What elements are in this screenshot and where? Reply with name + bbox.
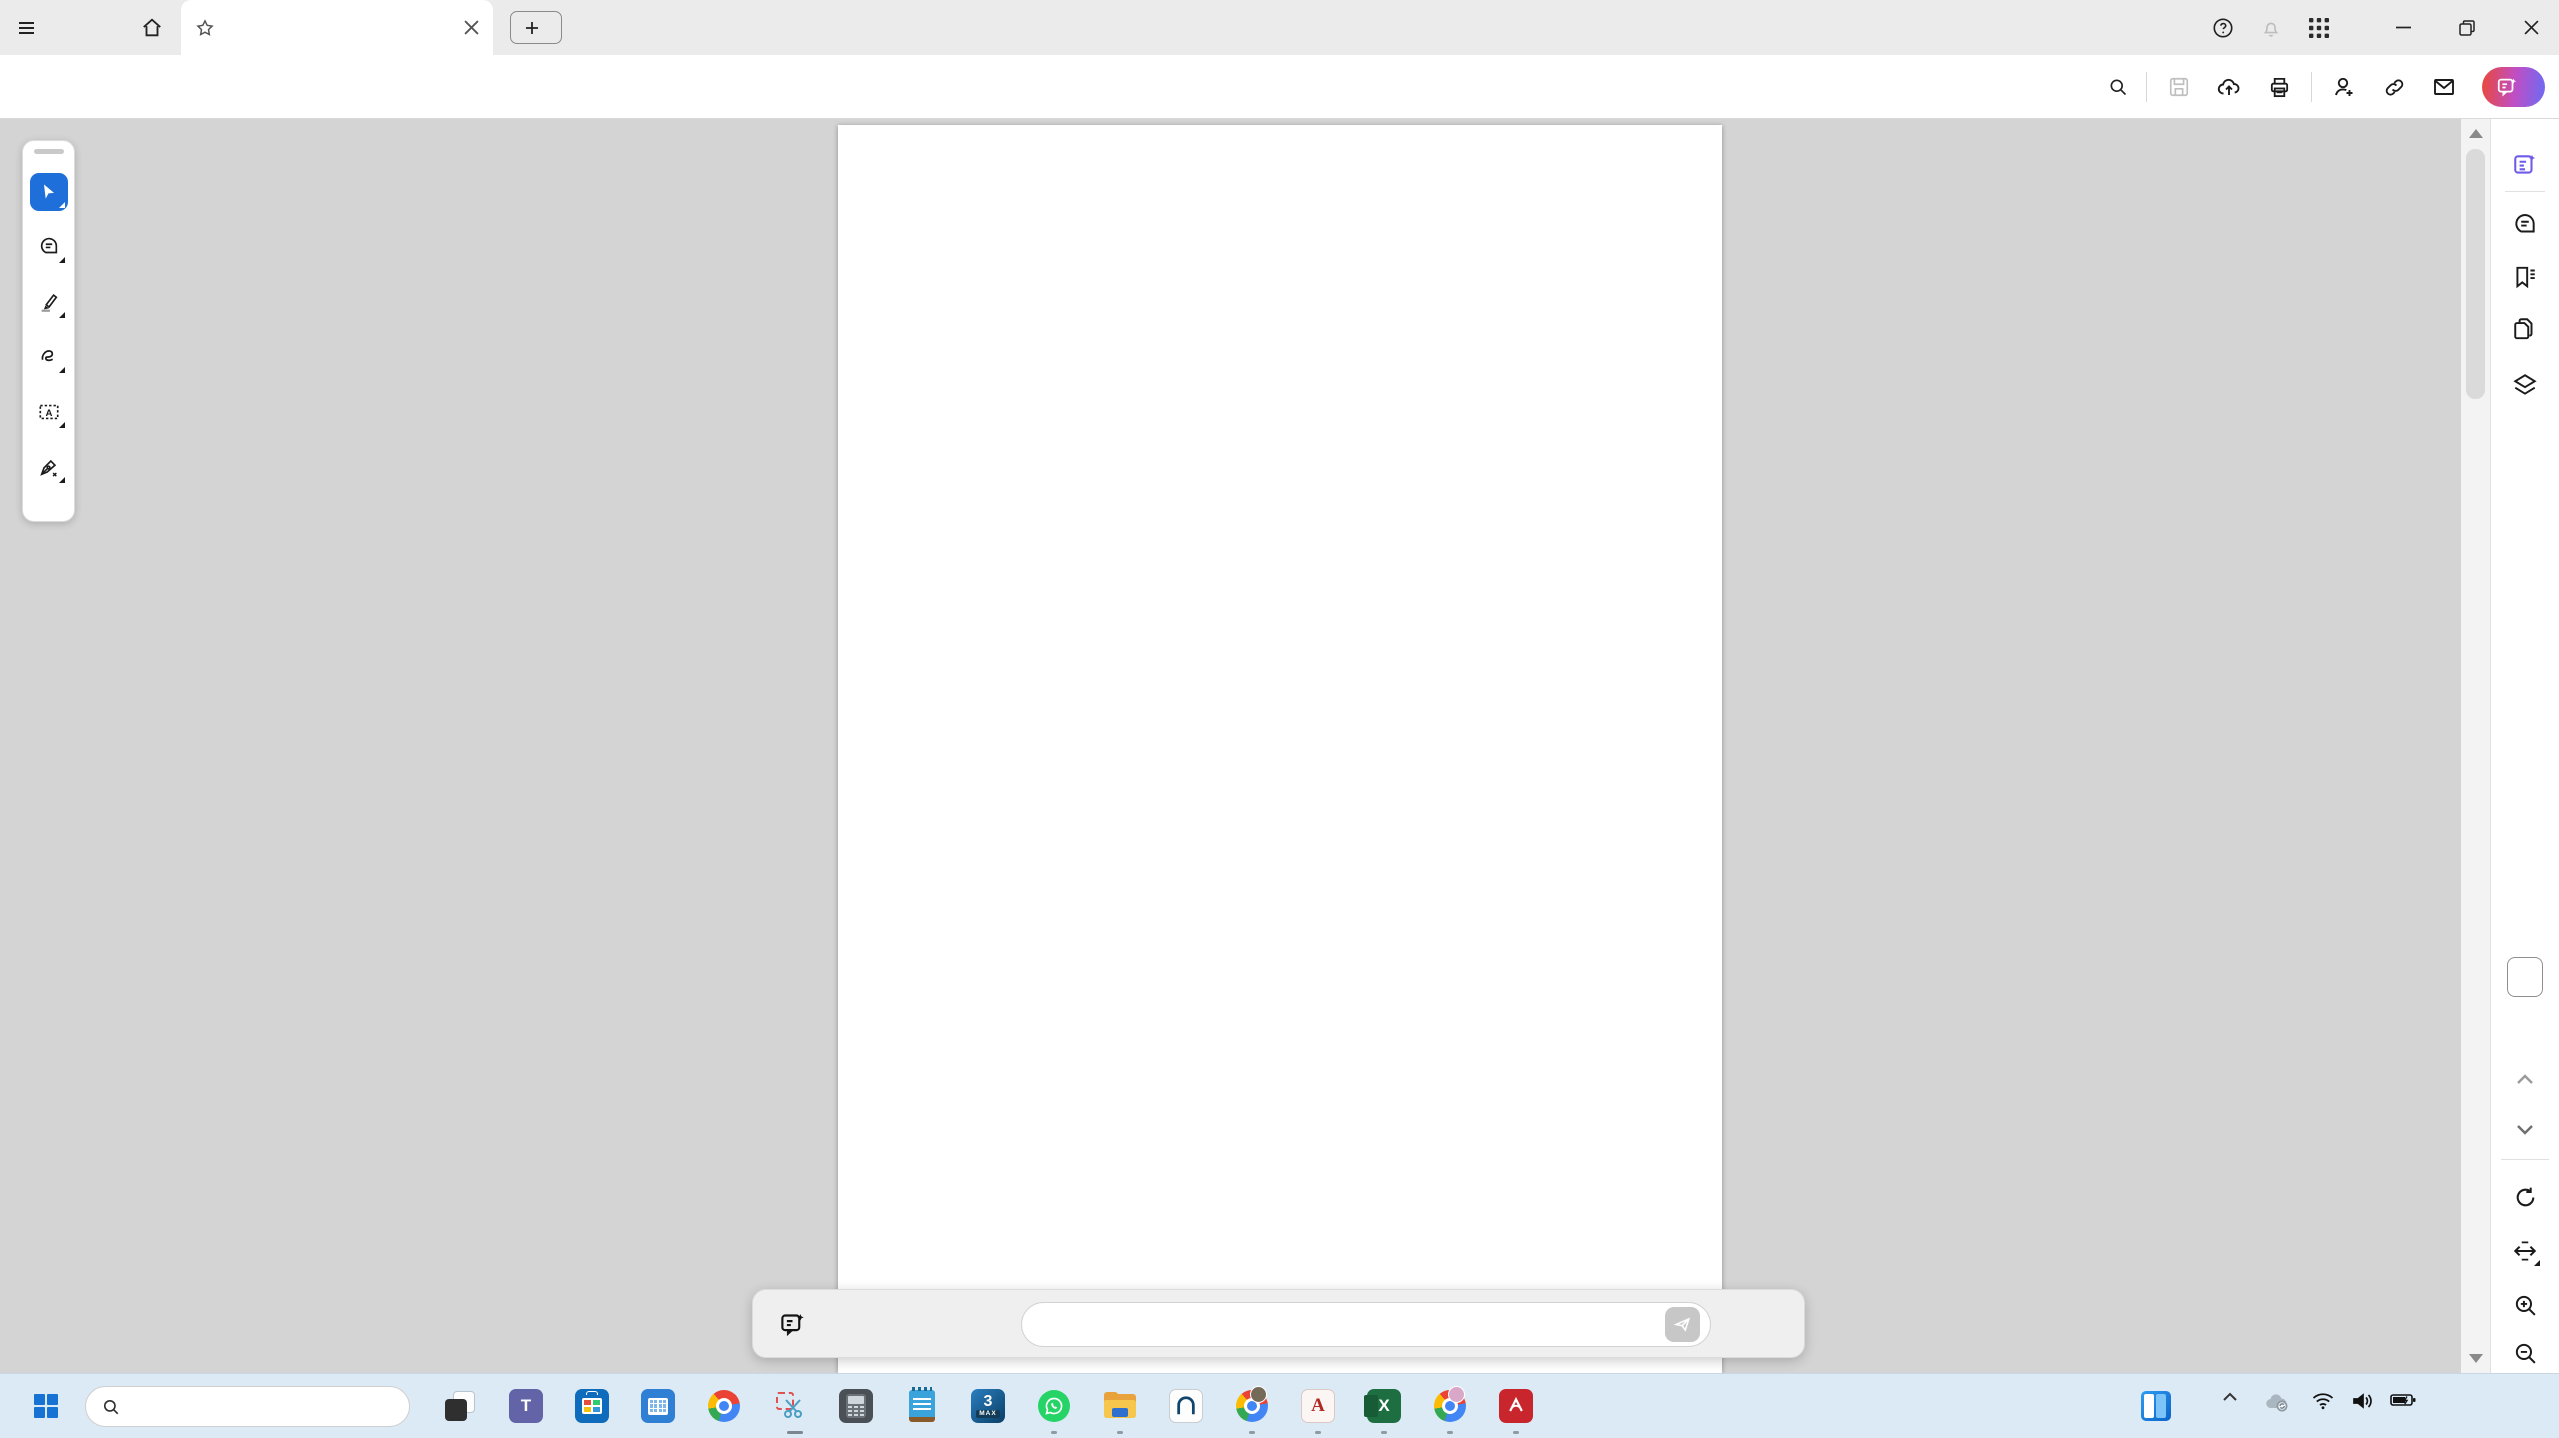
- onedrive-icon[interactable]: [2264, 1392, 2290, 1412]
- quick-tools-palette: A: [22, 140, 75, 522]
- 3dsmax-icon[interactable]: 3MAX: [968, 1386, 1008, 1426]
- volume-icon[interactable]: [2352, 1392, 2374, 1410]
- notepad-icon[interactable]: [902, 1386, 942, 1426]
- svg-text:A: A: [45, 408, 52, 419]
- battery-icon[interactable]: [2390, 1392, 2416, 1408]
- link-icon[interactable]: [2376, 69, 2412, 105]
- task-view-icon[interactable]: [440, 1386, 480, 1426]
- pages-panel-icon[interactable]: [2505, 309, 2545, 349]
- text-select-icon: A: [38, 401, 60, 423]
- page-number-input[interactable]: [2507, 957, 2543, 997]
- profile-avatar: [1250, 1386, 1267, 1403]
- close-window-button[interactable]: [2503, 0, 2559, 55]
- restore-button[interactable]: [2439, 0, 2495, 55]
- save-icon: [2161, 69, 2197, 105]
- snipping-tool-icon[interactable]: [770, 1386, 810, 1426]
- ai-chat-icon: [779, 1311, 806, 1338]
- taskbar-search[interactable]: [85, 1386, 410, 1427]
- previous-page-chevron-icon[interactable]: [2505, 1059, 2545, 1099]
- email-icon[interactable]: [2426, 69, 2462, 105]
- start-button[interactable]: [26, 1386, 66, 1426]
- cloud-upload-icon[interactable]: [2211, 69, 2247, 105]
- cursor-arrow-icon: [39, 182, 59, 202]
- next-page-chevron-icon[interactable]: [2505, 1109, 2545, 1149]
- pen-nib-icon: [38, 456, 60, 478]
- home-button[interactable]: [130, 0, 174, 55]
- home-icon: [141, 17, 163, 39]
- whatsapp-icon[interactable]: [1034, 1386, 1074, 1426]
- menu-button[interactable]: [0, 0, 63, 55]
- fill-sign-tool[interactable]: [30, 448, 68, 486]
- teams-icon[interactable]: T: [506, 1386, 546, 1426]
- request-signatures-icon[interactable]: [2326, 69, 2362, 105]
- tray-chevron-icon[interactable]: [2222, 1392, 2238, 1402]
- wifi-icon[interactable]: [2312, 1392, 2334, 1410]
- help-icon[interactable]: [2203, 0, 2243, 55]
- close-tab-icon[interactable]: [464, 20, 479, 35]
- notifications-bell-icon[interactable]: [2251, 0, 2291, 55]
- title-bar: [0, 0, 2559, 55]
- apps-grid-icon[interactable]: [2299, 0, 2339, 55]
- document-tab[interactable]: [181, 0, 493, 55]
- ai-question-input[interactable]: [1021, 1302, 1711, 1347]
- highlighter-icon: [38, 291, 60, 313]
- document-canvas[interactable]: [0, 119, 2490, 1373]
- hamburger-icon: [18, 21, 35, 35]
- file-explorer-icon[interactable]: [1100, 1386, 1140, 1426]
- calendar-icon[interactable]: [638, 1386, 678, 1426]
- profile-avatar: [1448, 1386, 1465, 1403]
- star-icon[interactable]: [195, 18, 215, 38]
- excel-icon[interactable]: X: [1364, 1386, 1404, 1426]
- chrome-icon[interactable]: [704, 1386, 744, 1426]
- right-panel-rail: [2490, 119, 2559, 1373]
- app-toolbar: [0, 55, 2559, 119]
- comment-bubble-icon: [38, 236, 60, 258]
- create-tab-button[interactable]: [510, 11, 562, 44]
- document-scrollbar[interactable]: [2461, 119, 2490, 1373]
- search-icon: [2108, 77, 2128, 97]
- select-tool[interactable]: [30, 173, 68, 211]
- zoom-out-icon[interactable]: [2505, 1333, 2545, 1373]
- windows-taskbar: T: [0, 1373, 2559, 1438]
- layers-panel-icon[interactable]: [2505, 365, 2545, 405]
- palette-drag-handle[interactable]: [34, 149, 64, 154]
- print-icon[interactable]: [2261, 69, 2297, 105]
- fit-width-icon[interactable]: [2505, 1231, 2545, 1271]
- facade-drawing: [838, 125, 1722, 1373]
- draw-tool[interactable]: [30, 338, 68, 376]
- chrome-profile2-icon[interactable]: [1430, 1386, 1470, 1426]
- taskbar-search-input[interactable]: [132, 1398, 372, 1415]
- rotate-page-icon[interactable]: [2505, 1177, 2545, 1217]
- chrome-profile1-icon[interactable]: [1232, 1386, 1272, 1426]
- scroll-up-arrow[interactable]: [2469, 129, 2483, 138]
- archicad-icon[interactable]: [1166, 1386, 1206, 1426]
- send-button[interactable]: [1665, 1307, 1700, 1342]
- find-text-button[interactable]: [2098, 77, 2128, 97]
- minimize-button[interactable]: [2375, 0, 2431, 55]
- autocad-icon[interactable]: A: [1298, 1386, 1338, 1426]
- ai-assistant-icon: [2496, 76, 2518, 98]
- acrobat-icon[interactable]: [1496, 1386, 1536, 1426]
- pdf-page[interactable]: [838, 125, 1722, 1373]
- comments-panel-icon[interactable]: [2505, 205, 2545, 245]
- microsoft-store-icon[interactable]: [572, 1386, 612, 1426]
- draw-squiggle-icon: [38, 346, 60, 368]
- ai-assistant-panel-icon[interactable]: [2505, 145, 2545, 185]
- zoom-in-icon[interactable]: [2505, 1285, 2545, 1325]
- calculator-icon[interactable]: [836, 1386, 876, 1426]
- scroll-down-arrow[interactable]: [2469, 1354, 2483, 1363]
- highlight-tool[interactable]: [30, 283, 68, 321]
- ask-ai-bar: [752, 1289, 1805, 1358]
- tray-app-icon[interactable]: [2136, 1386, 2176, 1426]
- scrollbar-thumb[interactable]: [2466, 149, 2485, 399]
- bookmarks-panel-icon[interactable]: [2505, 257, 2545, 297]
- ai-assistant-button[interactable]: [2482, 67, 2545, 107]
- select-text-tool[interactable]: A: [30, 393, 68, 431]
- comment-tool[interactable]: [30, 228, 68, 266]
